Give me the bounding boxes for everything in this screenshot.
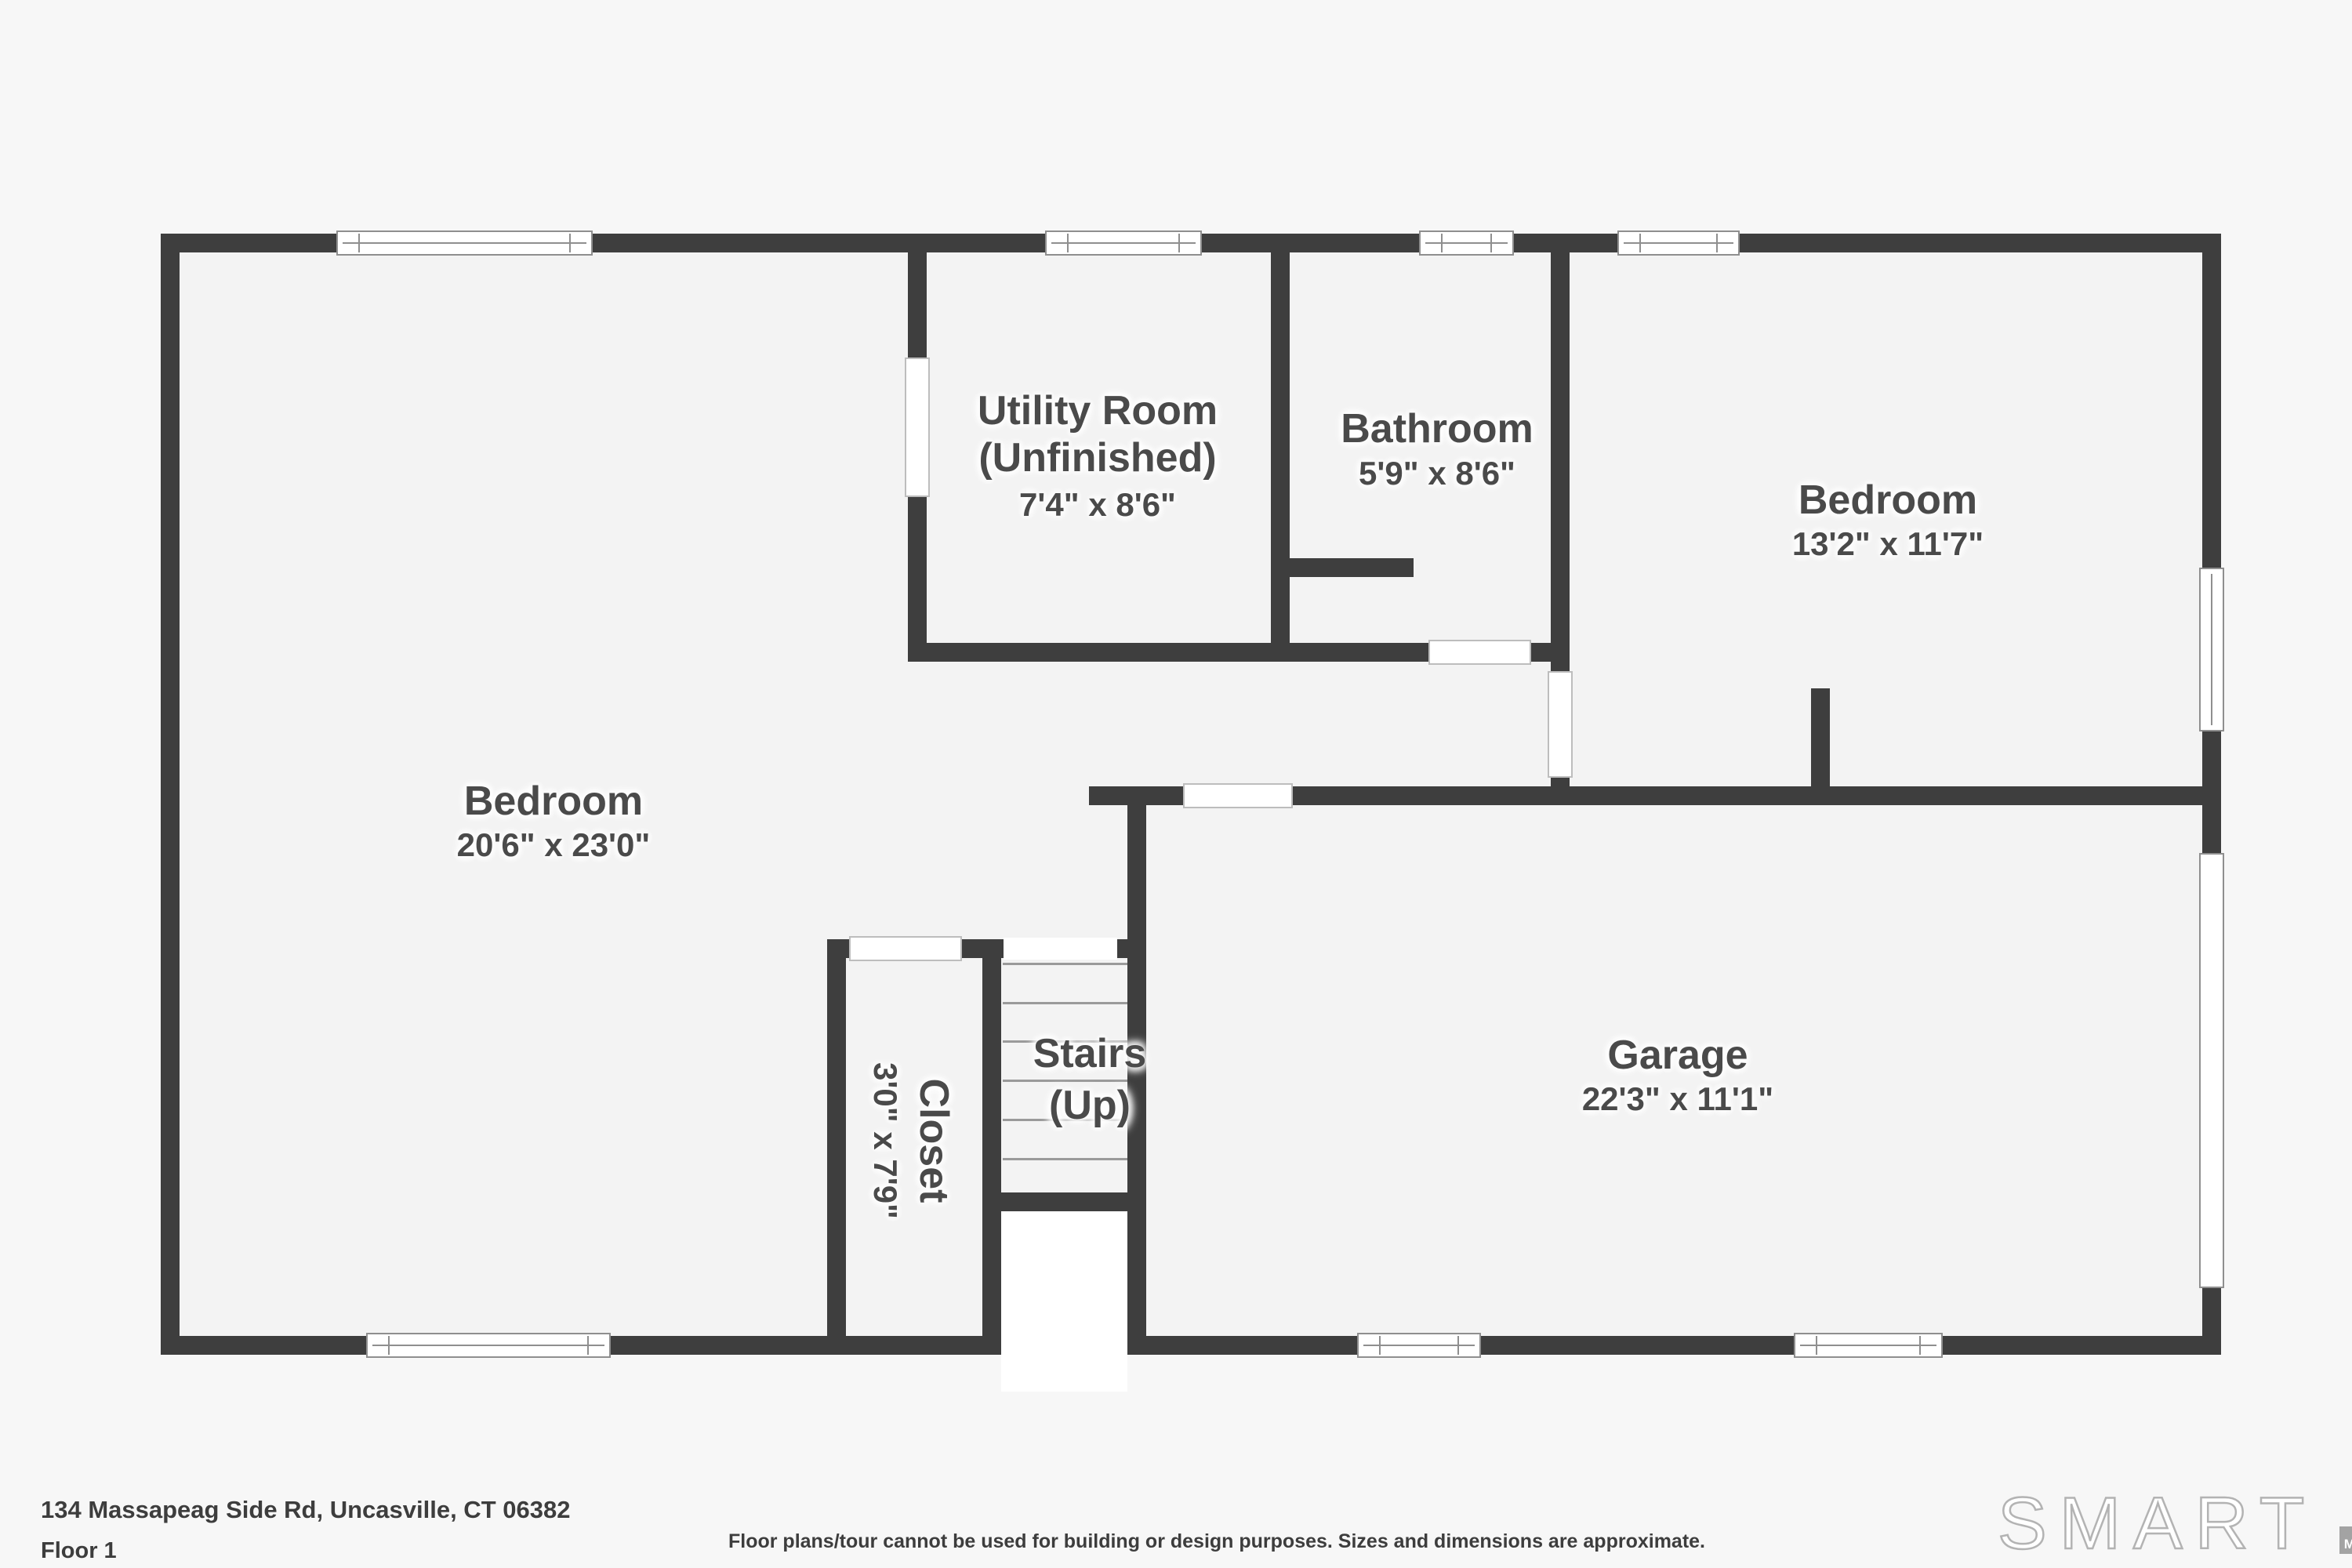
door-opening-garage: [1183, 783, 1293, 808]
window-utility-top: [1045, 230, 1202, 256]
wall-bedroom-entry-lower: [1551, 778, 1570, 786]
room-label-bedroom-left: Bedroom: [464, 778, 643, 825]
wall-outer-left: [161, 234, 180, 1355]
room-label-stairs: Stairs: [1033, 1030, 1147, 1077]
stair-tread: [1003, 963, 1127, 965]
wall-hall-top-pillar: [1531, 643, 1570, 662]
window-garage-bottom-2: [1794, 1333, 1943, 1358]
door-opening-utility: [905, 358, 930, 497]
disclaimer-text: Floor plans/tour cannot be used for buil…: [728, 1530, 1705, 1553]
wall-bedroom-utility-upper: [908, 252, 927, 358]
wall-outer-bottom-right: [1127, 1336, 2221, 1355]
wall-stairs-bottom: [982, 1192, 1146, 1211]
stair-tread: [1003, 1158, 1127, 1160]
wall-closet-left: [827, 939, 846, 1336]
wall-utility-bathroom: [1271, 252, 1290, 643]
window-bedroom-left-bottom: [366, 1333, 611, 1358]
window-bedroom-left-top: [336, 230, 593, 256]
wall-closet-stairs: [982, 958, 1001, 1336]
window-garage-bottom-1: [1357, 1333, 1481, 1358]
opening-stairs-top: [1004, 938, 1117, 960]
room-dims-utility: 7'4" x 8'6": [1019, 486, 1176, 524]
room-label-bathroom: Bathroom: [1341, 405, 1534, 452]
wall-closet-stairs-top: [962, 939, 1004, 958]
wall-bedroom-utility-lower: [908, 497, 927, 643]
door-opening-bedroom-right: [1548, 671, 1573, 778]
garage-vehicle-door: [2199, 853, 2224, 1288]
room-label-bedroom-right: Bedroom: [1798, 477, 1977, 524]
wall-bedroom-stub: [1811, 688, 1830, 786]
room-label-closet: Closet 3'0" x 7'9": [864, 1062, 960, 1219]
floor-label: Floor 1: [41, 1538, 117, 1564]
room-label-garage: Garage: [1607, 1032, 1748, 1079]
wall-bathroom-bedroom: [1551, 252, 1570, 643]
room-dims-garage: 22'3" x 11'1": [1582, 1080, 1773, 1118]
room-dims-bedroom-right: 13'2" x 11'7": [1792, 525, 1984, 563]
door-opening-closet: [849, 936, 962, 961]
room-dims-closet: 3'0" x 7'9": [864, 1062, 907, 1219]
wall-hall-top-left: [908, 643, 1428, 662]
floorplan: Utility Room (Unfinished) 7'4" x 8'6" Ba…: [0, 0, 2352, 1568]
property-address: 134 Massapeag Side Rd, Uncasville, CT 06…: [41, 1496, 570, 1524]
window-bedroom-right-side: [2199, 568, 2224, 731]
wall-bedroom-entry-upper: [1551, 662, 1570, 671]
entry-corridor: [1001, 1211, 1127, 1392]
smart-mls-logo-bars: M L S: [2328, 1508, 2352, 1554]
logo-bar-m: M: [2339, 1526, 2352, 1554]
door-opening-bathroom: [1428, 640, 1531, 665]
room-dims-bathroom: 5'9" x 8'6": [1359, 455, 1515, 492]
wall-garage-top-right: [1293, 786, 2202, 805]
room-label-utility-qualifier: (Unfinished): [978, 434, 1216, 481]
wall-stairs-top-right: [1117, 939, 1146, 958]
window-bathroom-top: [1419, 230, 1514, 256]
room-label-utility: Utility Room: [978, 387, 1218, 434]
smart-mls-logo-brand: SMART: [1998, 1486, 2317, 1560]
window-bedroom-right-top: [1617, 230, 1740, 256]
wall-bathroom-stub: [1290, 558, 1414, 577]
wall-garage-top-left: [1089, 786, 1183, 805]
room-label-stairs-qualifier: (Up): [1049, 1082, 1131, 1129]
room-dims-bedroom-left: 20'6" x 23'0": [457, 826, 651, 864]
stair-tread: [1003, 1002, 1127, 1004]
room-label-closet-name: Closet: [907, 1062, 960, 1219]
smart-mls-logo: SMART M L S: [1998, 1486, 2352, 1560]
